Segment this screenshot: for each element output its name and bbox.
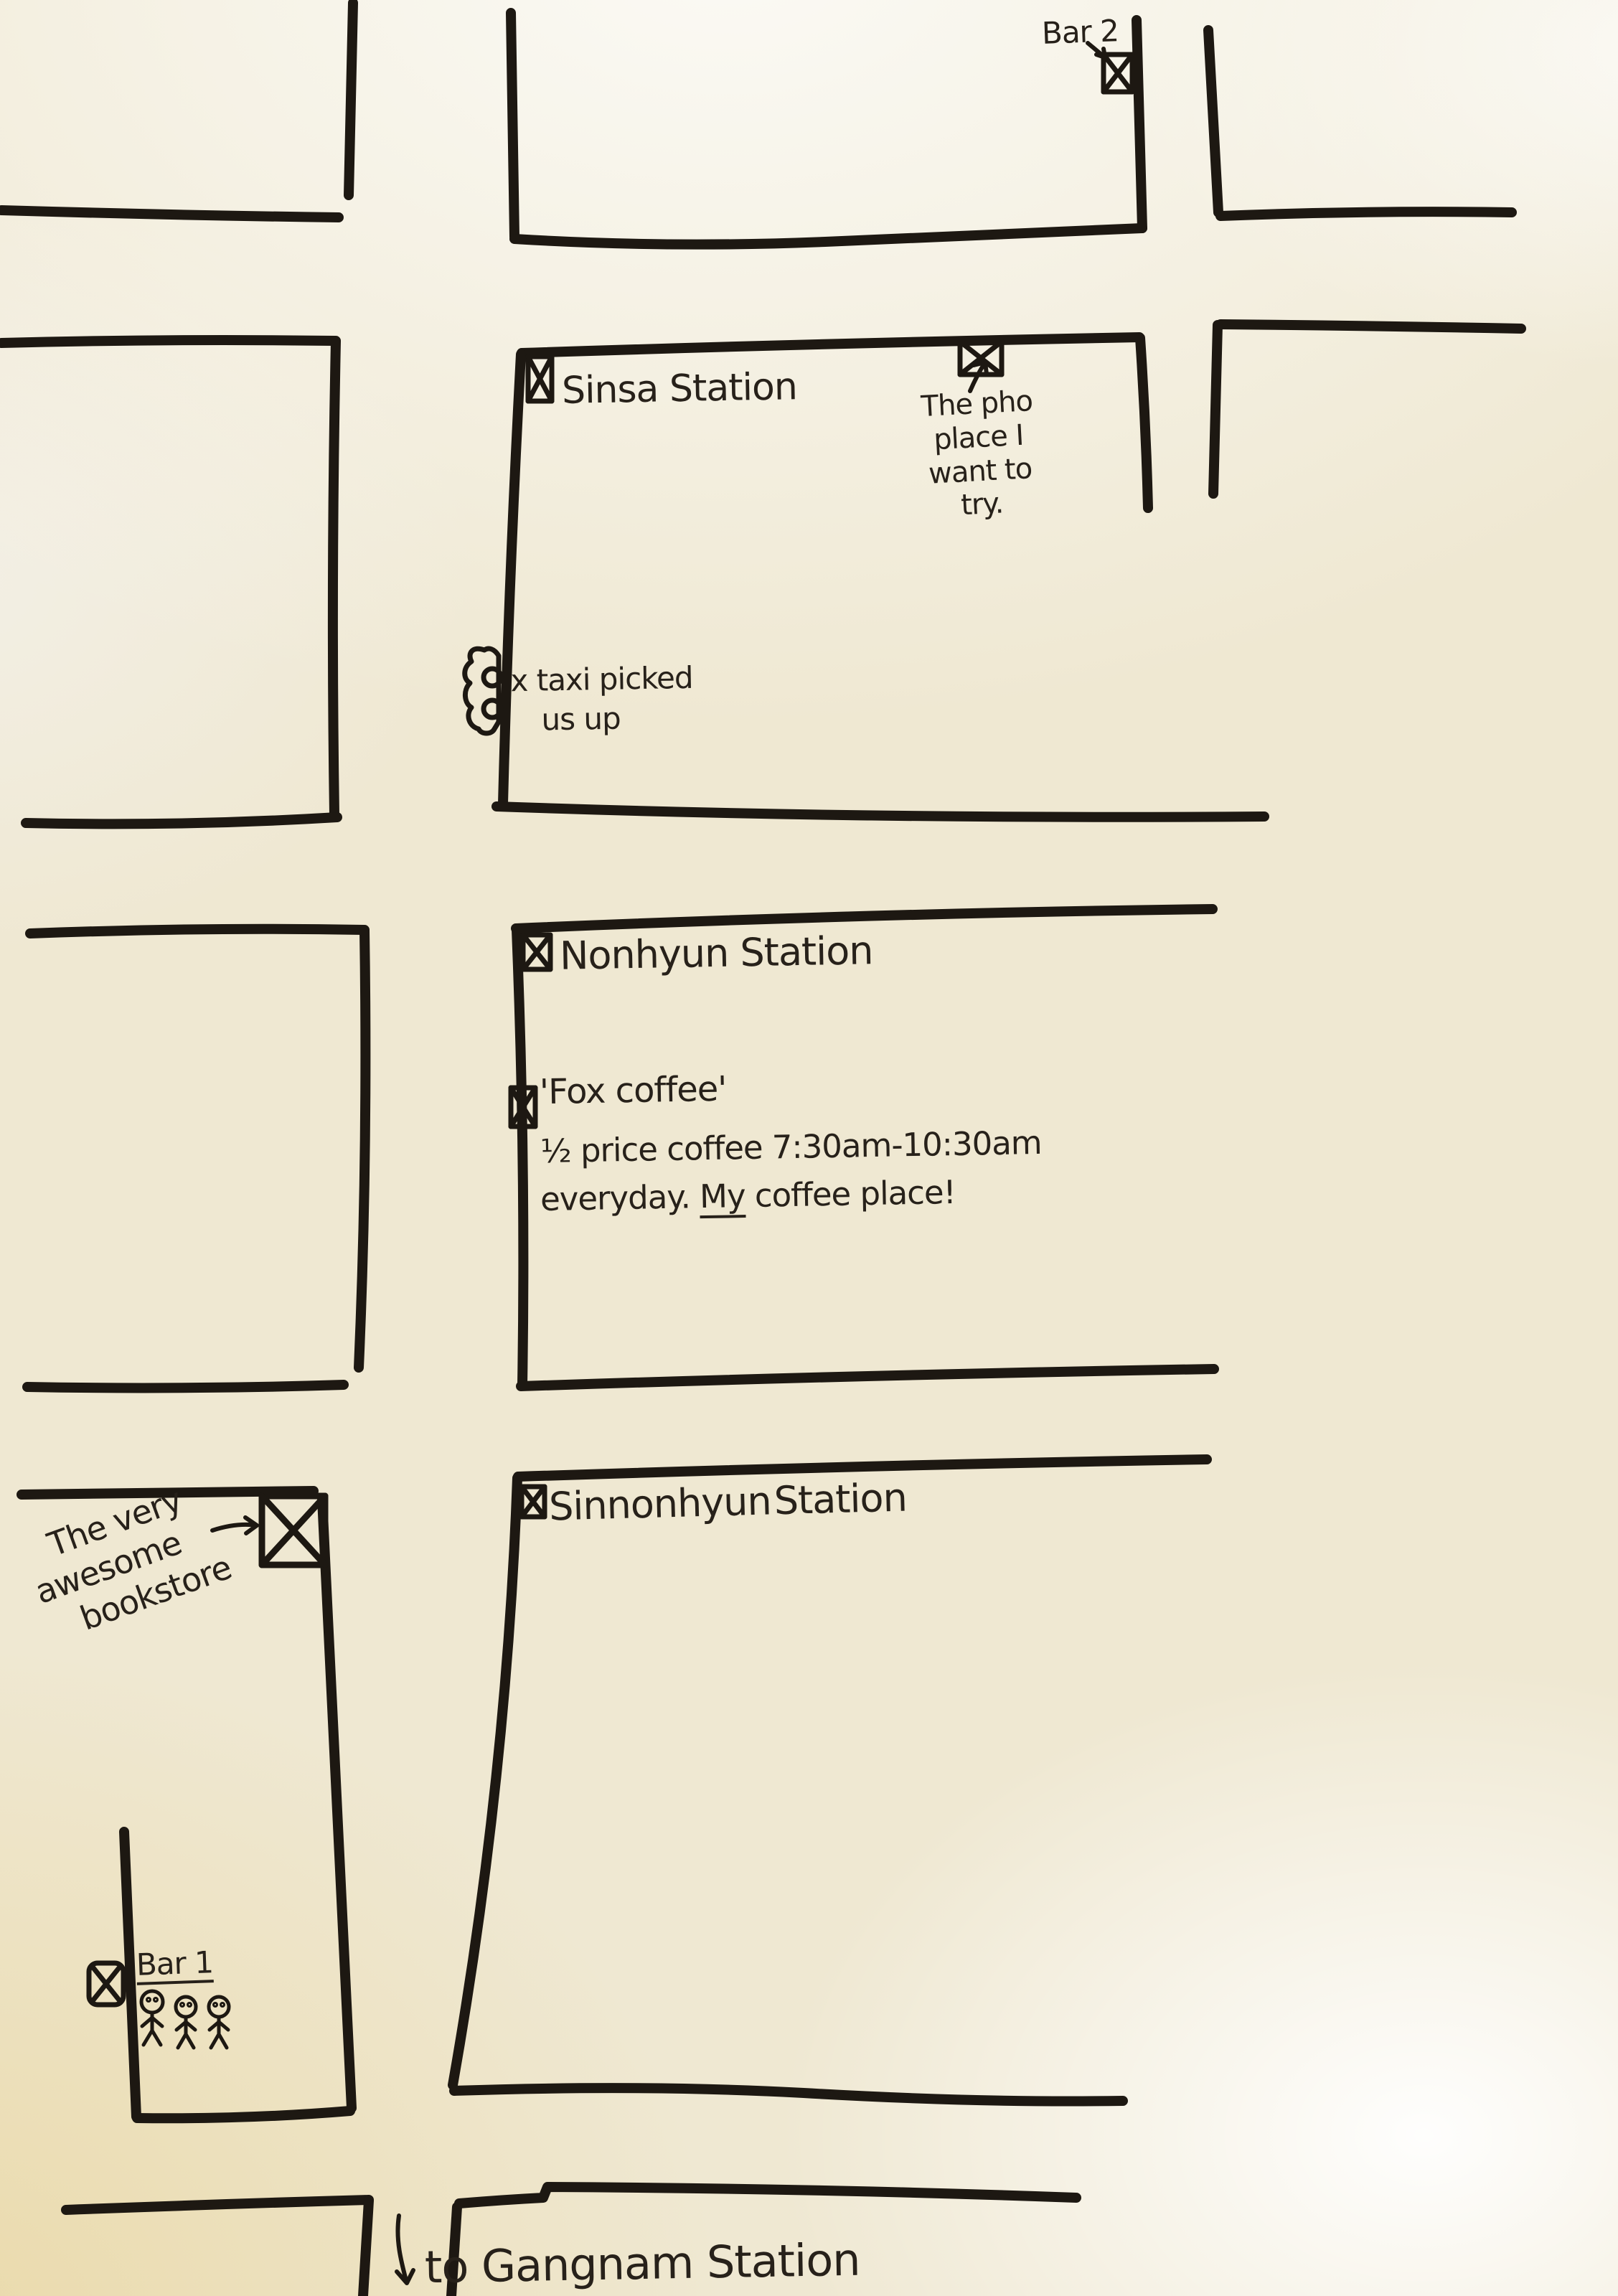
road-sinnonhyun-street: [518, 1459, 1207, 1477]
stick-figures-icon: [141, 1991, 229, 2048]
road-nonhyun-street: [516, 909, 1213, 928]
sinsa-station-marker-icon: [528, 357, 552, 401]
bar1-label: Bar 1: [136, 1944, 214, 1985]
road-bar1-bookstore-street: [137, 2111, 350, 2118]
road-bar2-vertical: [1137, 20, 1142, 228]
pho-place-note: The pho place I want to try.: [886, 383, 1072, 527]
road-top-street-east: [1220, 212, 1512, 216]
road-top-street: [514, 228, 1142, 245]
road-bottom-west-street: [66, 2200, 369, 2210]
road-west-block-bottom: [26, 817, 337, 824]
road-top-vertical-west: [511, 13, 514, 237]
gangnam-down-arrow-icon: [397, 2216, 413, 2283]
fox-coffee-title: 'Fox coffee': [540, 1069, 727, 1113]
road-bottom-east-street: [459, 2187, 1076, 2203]
bar1-marker-icon: [89, 1963, 123, 2005]
fox-comment-pre: everyday.: [540, 1177, 700, 1218]
road-row2-east-vertical: [1213, 325, 1218, 494]
taxi-car-icon: [465, 649, 501, 733]
bookstore-marker-icon: [262, 1496, 325, 1565]
road-row2-east-street: [1220, 324, 1521, 329]
taxi-note-line1: x taxi picked: [510, 659, 693, 701]
fox-coffee-comment: everyday. My coffee place!: [540, 1173, 956, 1218]
fox-comment-underlined-word: My: [700, 1177, 745, 1218]
nonhyun-station-marker-icon: [523, 935, 550, 969]
road-topleft-vertical: [349, 3, 353, 195]
road-bottom-west-vertical: [363, 2201, 369, 2296]
bar2-marker-icon: [1104, 55, 1132, 92]
road-sinsa-street-end-vertical: [1140, 338, 1148, 508]
road-west-bracket-vertical: [359, 931, 365, 1368]
road-bar1-vertical: [124, 1832, 136, 2117]
road-nonhyun-block-vertical: [517, 930, 523, 1385]
road-topleft-horizontal: [1, 210, 339, 217]
road-west-bracket-bottom: [27, 1385, 344, 1388]
road-sinnonhyun-avenue-vertical: [453, 1478, 517, 2085]
road-west-block-vertical: [333, 342, 336, 814]
sinnonhyun-station-label: Sinnonhyun Station: [548, 1474, 907, 1529]
road-sinnonhyun-block-bottom: [454, 2088, 1123, 2101]
fox-comment-post: coffee place!: [745, 1173, 956, 1215]
road-west-bracket-top: [30, 929, 364, 933]
road-sinsa-street: [522, 337, 1139, 353]
road-bookstore-avenue-vertical: [322, 1499, 352, 2108]
taxi-note: x taxi picked us up: [510, 659, 694, 740]
sinnonhyun-station-marker-icon: [522, 1487, 545, 1517]
gangnam-station-label: to Gangnam Station: [424, 2234, 860, 2294]
road-nonhyun-block-bottom: [521, 1369, 1214, 1386]
taxi-note-line2: us up: [541, 697, 694, 739]
bar2-label: Bar 2: [1041, 13, 1119, 51]
road-west-block-top: [1, 340, 336, 343]
nonhyun-station-label: Nonhyun Station: [559, 928, 873, 979]
road-top-vertical-east: [1208, 30, 1218, 212]
sinsa-station-label: Sinsa Station: [562, 365, 798, 413]
hand-drawn-map: Bar 2 Sinsa Station The pho place I want…: [0, 0, 1618, 2296]
road-sinsa-block-bottom: [497, 806, 1264, 817]
